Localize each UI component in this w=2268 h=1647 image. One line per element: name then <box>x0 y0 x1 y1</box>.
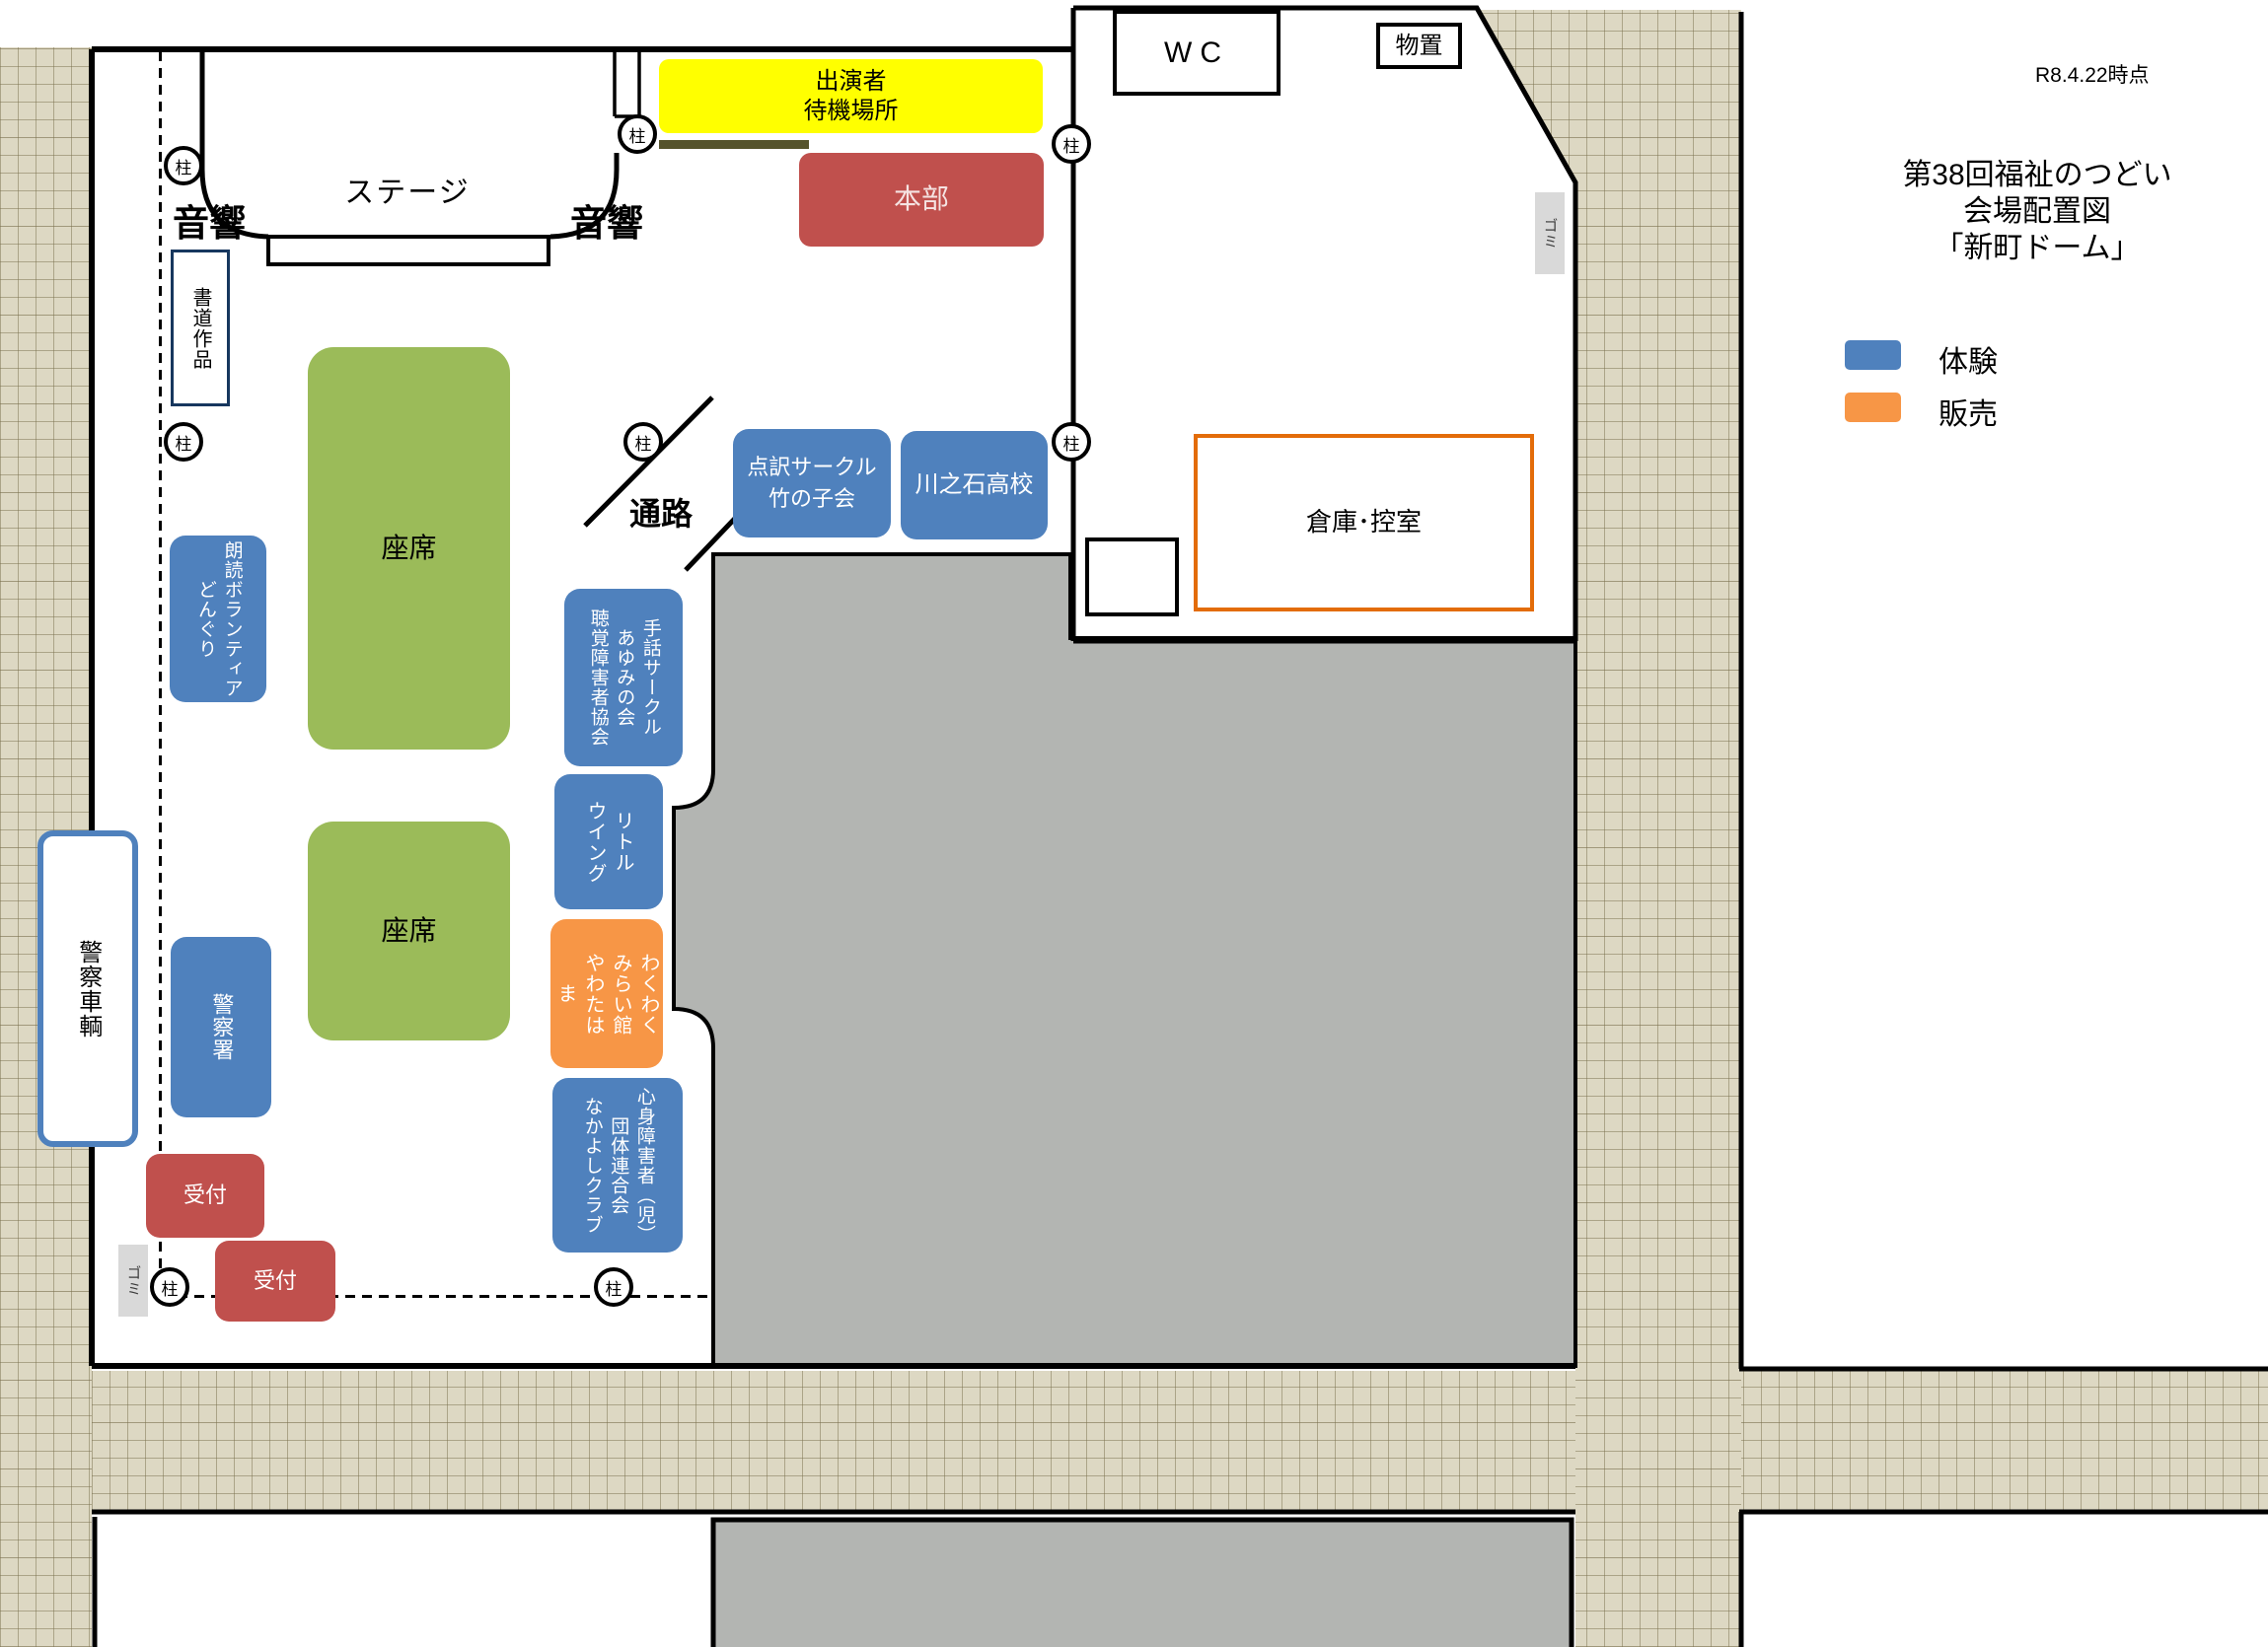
pillar-east-wall: 柱 <box>1052 422 1091 462</box>
pillar-bottom-mid: 柱 <box>594 1267 633 1307</box>
gray-area-south <box>713 1520 1572 1647</box>
booth-police-station: 警察署 <box>171 937 271 1117</box>
stage-column <box>615 51 639 116</box>
divider-bar <box>659 140 809 149</box>
legend-swatch-taiken <box>1845 340 1901 370</box>
pillar-stage-left: 柱 <box>164 146 203 185</box>
seats-back: 座席 <box>308 822 510 1040</box>
calligraphy-box: 書道作品 <box>171 250 230 406</box>
sound-label-right: 音響 <box>570 193 643 247</box>
warehouse-box: 倉庫･控室 <box>1194 434 1534 611</box>
police-vehicle-area: 警察車輌 <box>37 830 138 1147</box>
pillar-north-wall: 柱 <box>1052 124 1091 164</box>
gray-area <box>674 554 1575 1366</box>
pillar-left-mid: 柱 <box>164 422 203 462</box>
headquarters-box: 本部 <box>799 153 1044 247</box>
pillar-stage-right: 柱 <box>618 114 657 154</box>
pillar-bottom-left: 柱 <box>150 1267 189 1307</box>
venue-floor-plan: ステージ 音響 音響 通路 出演者 待機場所 本部 WC 物置 倉庫･控室 書道… <box>0 0 2268 1647</box>
sound-label-left: 音響 <box>173 193 246 247</box>
performer-waiting-area: 出演者 待機場所 <box>659 59 1043 133</box>
booth-shuwa-ayumi: 手話サークル あゆみの会 聴覚障害者協会 <box>564 589 683 766</box>
pillar-aisle: 柱 <box>623 422 663 462</box>
reception-box-2: 受付 <box>215 1241 335 1322</box>
booth-shinshin-nakayoshi: 心身障害者（児） 団体連合会 なかよしクラブ <box>552 1078 683 1253</box>
dashed-line-vertical <box>159 51 162 1297</box>
timestamp-note: R8.4.22時点 <box>2035 59 2150 89</box>
aisle-label: 通路 <box>629 489 693 535</box>
page-title: 第38回福祉のつどい 会場配置図 「新町ドーム」 <box>1874 158 2200 267</box>
stage-label: ステージ <box>333 168 481 211</box>
seats-front: 座席 <box>308 347 510 750</box>
booth-kawanoishi-highschool: 川之石高校 <box>901 431 1048 539</box>
booth-roudoku-donguri: 朗読ボランティア どんぐり <box>170 536 266 702</box>
road-bottom-band <box>92 1371 2268 1512</box>
legend-label-taiken: 体験 <box>1939 337 1998 381</box>
booth-tenyaku-takenoko: 点訳サークル 竹の子会 <box>733 429 891 537</box>
booth-wakuwaku-miraikan: わくわく みらい館 やわたは ま <box>550 919 663 1068</box>
unlabeled-box <box>1085 537 1179 616</box>
trash-label-top-right: ゴミ <box>1535 192 1565 274</box>
shed-box: 物置 <box>1376 23 1462 69</box>
wc-box: WC <box>1113 10 1280 96</box>
booth-little-wing: リトル ウイング <box>554 774 663 909</box>
legend-swatch-hanbai <box>1845 393 1901 422</box>
stage-steps <box>268 237 549 264</box>
legend-label-hanbai: 販売 <box>1939 390 1998 433</box>
trash-label-bottom-left: ゴミ <box>118 1245 148 1317</box>
reception-box-1: 受付 <box>146 1154 264 1238</box>
